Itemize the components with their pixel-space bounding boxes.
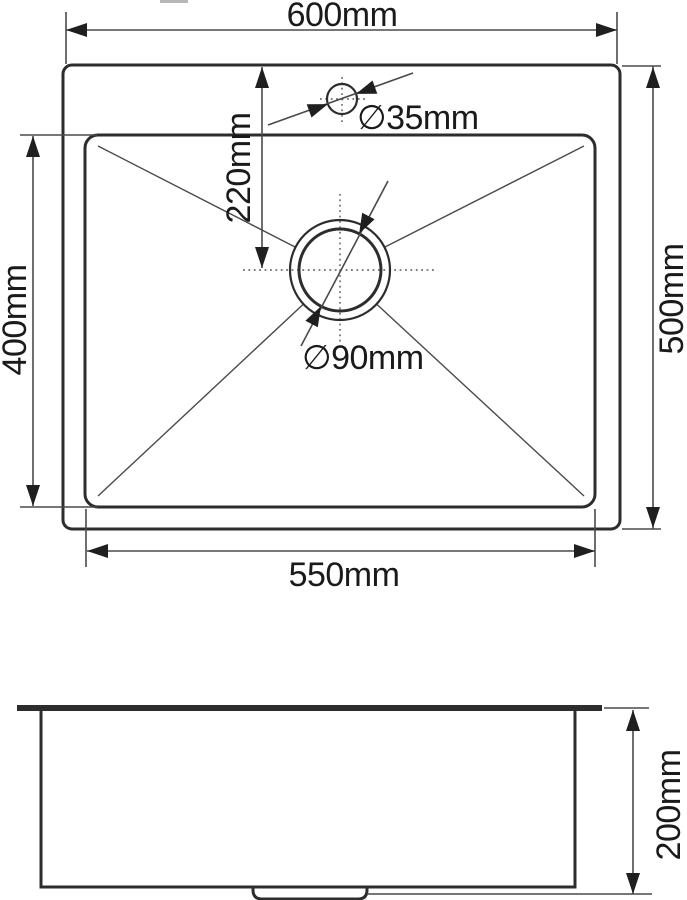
side-rim-bar	[17, 705, 602, 711]
dim-drain-diameter: ∅90mm	[301, 181, 424, 377]
arrowhead	[26, 136, 40, 157]
bowl-slope-line-bottom-left	[98, 304, 303, 496]
arrowhead	[596, 23, 617, 37]
bowl-depth-label: 400mm	[0, 265, 34, 376]
arrowhead	[626, 710, 640, 731]
arrowhead	[626, 873, 640, 894]
bowl-width-label: 550mm	[289, 556, 400, 594]
side-bowl-body	[41, 711, 575, 887]
side-view: 200mm	[17, 705, 687, 899]
dim-bowl-depth: 400mm	[0, 135, 97, 507]
sink-technical-drawing: ∅35mm ∅90mm 600mm	[0, 0, 687, 900]
drain-diameter-label: ∅90mm	[302, 339, 424, 377]
dim-bowl-width: 550mm	[86, 509, 595, 594]
bowl-slope-line-top-left	[98, 146, 296, 247]
arrowhead	[307, 104, 328, 117]
overall-depth-label: 500mm	[653, 244, 687, 355]
dim-faucet-offset: 220mm	[220, 67, 269, 268]
arrowhead	[26, 485, 40, 506]
arrowhead	[66, 23, 87, 37]
dim-overall-depth: 500mm	[622, 66, 687, 529]
faucet-offset-label: 220mm	[220, 113, 258, 224]
arrowhead	[356, 81, 377, 94]
scan-artifact	[160, 0, 188, 3]
drawing-canvas: ∅35mm ∅90mm 600mm	[0, 0, 687, 900]
dim-overall-width: 600mm	[66, 0, 617, 64]
arrowhead	[574, 544, 595, 558]
arrowhead	[255, 247, 269, 268]
faucet-diameter-label: ∅35mm	[357, 99, 479, 137]
arrowhead	[646, 67, 660, 88]
side-drain-bump	[253, 888, 367, 899]
arrowhead	[255, 67, 269, 88]
top-view: ∅35mm ∅90mm 600mm	[0, 0, 687, 594]
overall-width-label: 600mm	[287, 0, 398, 34]
dim-faucet-diameter: ∅35mm	[268, 73, 479, 137]
arrowhead	[646, 507, 660, 528]
arrowhead	[87, 544, 108, 558]
bowl-slope-line-bottom-right	[377, 304, 584, 496]
bowl-slope-line-top-right	[385, 146, 585, 247]
dim-bowl-height: 200mm	[367, 708, 687, 894]
bowl-height-label: 200mm	[650, 750, 687, 861]
